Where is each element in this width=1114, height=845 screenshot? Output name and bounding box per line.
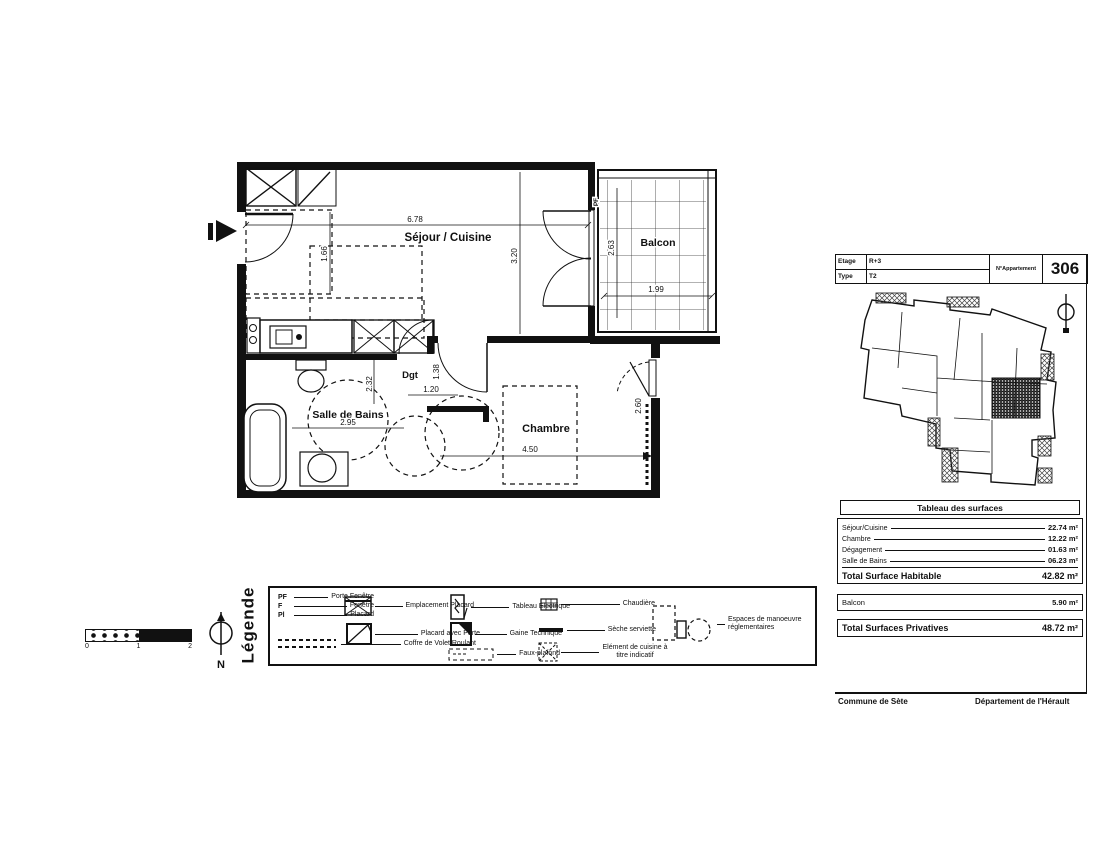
gaine-technique-icon — [450, 622, 472, 646]
apartment-number-label: N°Appartement — [989, 255, 1042, 283]
surface-row-sejour: Séjour/Cuisine 22.74 m² — [842, 521, 1078, 532]
legend-item-espaces-manoeuvre: Espaces de manoeuvre réglementaires — [652, 604, 810, 644]
placard-avec-porte-icon — [346, 622, 372, 646]
room-label-dgt: Dgt — [402, 370, 419, 381]
etage-value: R+3 — [867, 255, 989, 270]
total-privatives-row: Total Surfaces Privatives 48.72 m² — [837, 619, 1083, 637]
emplacement-placard-icon — [344, 596, 372, 616]
surfaces-table: Séjour/Cuisine 22.74 m² Chambre 12.22 m²… — [837, 518, 1083, 584]
scale-bar-segment-solid — [139, 630, 192, 641]
faux-plafond-icon — [448, 648, 494, 661]
panel-right-border — [1086, 254, 1087, 693]
etage-label: Etage — [836, 255, 866, 270]
surfaces-table-title: Tableau des surfaces — [840, 500, 1080, 515]
legend-item-element-cuisine: Elément de cuisine à titre indicatif — [538, 642, 668, 662]
surface-row-bains: Salle de Bains 06.23 m² — [842, 554, 1078, 565]
floor-plan: Séjour / Cuisine Balcon Salle de Bains C… — [200, 148, 720, 508]
tableau-electrique-icon — [450, 594, 468, 620]
chaudiere-icon — [540, 598, 558, 611]
apartment-header: Etage Type R+3 T2 N°Appartement 306 — [835, 254, 1088, 284]
bathroom-fixtures — [244, 360, 348, 492]
balcon-row: Balcon 5.90 m² — [837, 594, 1083, 611]
scale-bar-segment-dotted — [86, 630, 139, 641]
dim-balcon-depth: 2.63 — [607, 240, 616, 256]
seche-serviette-icon — [538, 626, 564, 634]
interior-doors — [397, 320, 487, 392]
dim-bath-depth: 2.32 — [365, 376, 374, 392]
panel-bottom-border — [835, 692, 1087, 694]
legend: PF Porte Fenêtre F Fenêtre Pl Placard Co… — [268, 586, 817, 666]
apartment-number: 306 — [1042, 255, 1087, 283]
header-labels: Etage Type — [836, 255, 867, 283]
apartment-highlight — [992, 378, 1040, 418]
north-arrow-icon: N — [203, 611, 239, 669]
espaces-manoeuvre-icon — [652, 604, 714, 644]
kitchen-units — [247, 318, 434, 353]
scale-bar-graphic — [85, 629, 192, 642]
scanned-floor-plan-sheet: { "plan": { "labels": { "sejour_cuisine"… — [0, 0, 1114, 845]
dim-sejour-width: 6.78 — [407, 215, 423, 224]
porte-fenetre — [543, 210, 595, 306]
building-key-plan — [842, 288, 1082, 493]
legend-item-chaudiere: Chaudière — [540, 598, 655, 611]
type-value: T2 — [867, 270, 989, 284]
surface-row-degagement: Dégagement 01.63 m² — [842, 543, 1078, 554]
room-label-chambre: Chambre — [522, 423, 570, 435]
commune-label: Commune de Sète — [838, 697, 908, 706]
element-cuisine-icon — [538, 642, 558, 662]
dim-balcon-width: 1.99 — [648, 285, 664, 294]
north-label: N — [217, 659, 225, 669]
dim-chambre-width: 4.50 — [522, 445, 538, 454]
entry-door — [237, 212, 293, 264]
surface-row-chambre: Chambre 12.22 m² — [842, 532, 1078, 543]
dim-kitchen-depth: 1.66 — [320, 246, 329, 262]
departement-label: Département de l'Hérault — [975, 697, 1069, 706]
header-values: R+3 T2 — [867, 255, 989, 283]
room-label-sejour: Séjour / Cuisine — [405, 232, 492, 244]
coffre-volet-roulant-icon — [276, 636, 338, 652]
total-habitable-row: Total Surface Habitable 42.82 m² — [842, 567, 1078, 583]
entry-placard — [246, 168, 336, 206]
scale-bar-ticks: 0 1 2 — [85, 643, 192, 650]
scale-bar: 0 1 2 — [85, 629, 192, 650]
entry-arrow-icon — [208, 220, 237, 242]
dim-dgt-depth: 1.38 — [432, 364, 441, 380]
type-label: Type — [836, 270, 866, 284]
legend-item-seche-serviette: Sèche serviette — [538, 626, 656, 634]
dim-sejour-depth: 3.20 — [510, 248, 519, 264]
dim-chambre-depth: 2.60 — [634, 398, 643, 414]
room-label-balcon: Balcon — [640, 237, 675, 249]
key-plan-north-icon — [1058, 294, 1074, 333]
dim-bath-width: 2.95 — [340, 418, 356, 427]
label-pf: PF — [593, 198, 600, 206]
dim-dgt-width: 1.20 — [423, 385, 439, 394]
